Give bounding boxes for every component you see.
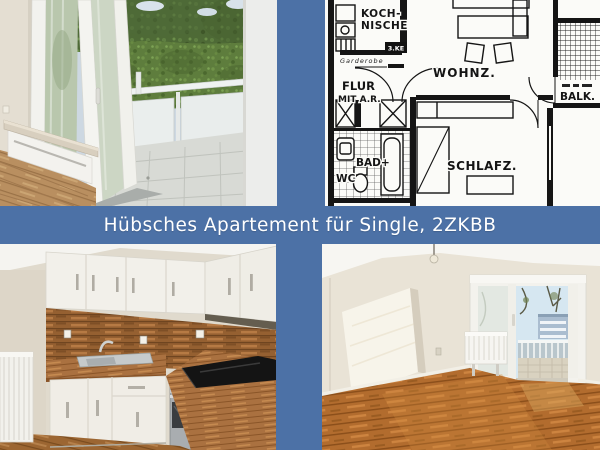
floor-plan: 3.KE KOCH- NISCHE Garderobe FLUR MIT A.R… [325,0,600,206]
balcony-rail [518,340,568,343]
photo-balcony-door [0,0,277,206]
backsplash-outlet [196,330,204,338]
cabinet-handle[interactable] [92,275,95,291]
balcony-door[interactable] [470,275,586,385]
plan-label-flur-1: FLUR [342,79,375,93]
plan-label-wc: WC [336,173,356,185]
cabinet-handle[interactable] [250,274,253,291]
living-room-photo-scene [322,244,600,450]
plan-label-schlafz: SCHLAFZ. [447,159,517,173]
plan-label-garderobe: Garderobe [340,57,384,65]
cabinet-handle[interactable] [116,277,119,292]
cabinet-handle[interactable] [66,402,69,418]
balcony-tiles [518,358,568,378]
listing-title-banner: Hübsches Apartement für Single, 2ZKBB [0,206,600,244]
kitchen-photo-scene [0,244,276,450]
cabinet-handle[interactable] [172,282,175,296]
plan-label-flur-2: MIT A.R. [338,95,381,105]
wall-outlet [436,348,441,355]
plan-label-kochnische-2: NISCHE [361,20,408,32]
cabinet-handle[interactable] [96,400,99,416]
open-view [516,286,568,378]
listing-title: Hübsches Apartement für Single, 2ZKBB [104,215,497,236]
plan-label-kochnische-1: KOCH- [361,8,401,20]
cabinet-handle[interactable] [76,274,79,290]
plan-label-bad: BAD+ [356,157,390,169]
cabinet-handle[interactable] [132,278,135,293]
drawer-handle[interactable] [128,386,145,389]
backsplash-outlet [64,330,71,338]
photo-kitchen [0,244,276,450]
plan-label-wohnz: WOHNZ. [433,66,496,80]
plan-label-fridge: 3.KE [388,45,404,53]
cabinet-handle[interactable] [136,412,139,427]
balcony-photo-scene [0,0,277,206]
door-handle[interactable] [96,88,100,104]
right-wall-edge [243,0,246,206]
cabinet-handle[interactable] [228,278,231,295]
right-wall [243,0,277,206]
door-handle[interactable] [512,314,515,326]
wall-outlet [3,106,9,113]
backsplash-outlet [140,336,147,344]
photo-living-room [322,244,600,450]
building-roof [538,314,568,317]
floor-plan-drawing: 3.KE KOCH- NISCHE Garderobe FLUR MIT A.R… [325,0,600,206]
kitchen-radiator [0,352,33,442]
plan-label-balk: BALK. [560,91,595,103]
